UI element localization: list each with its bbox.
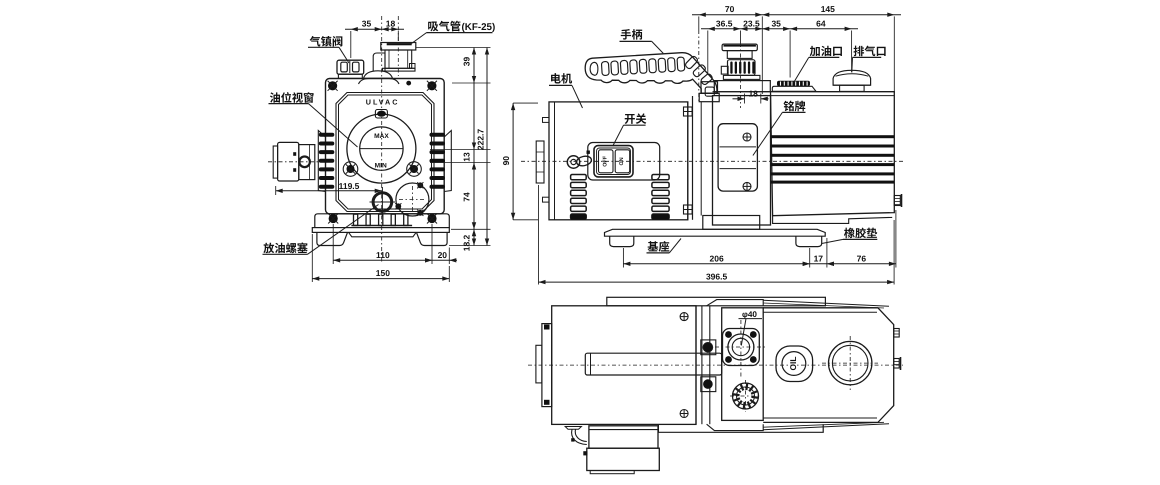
svg-text:35: 35 <box>771 18 781 28</box>
svg-text:18.2: 18.2 <box>462 234 472 251</box>
svg-text:145: 145 <box>821 4 835 14</box>
svg-text:MAX: MAX <box>374 133 389 140</box>
svg-text:(KF-25): (KF-25) <box>462 22 496 33</box>
svg-text:90: 90 <box>501 156 511 166</box>
svg-text:ON: ON <box>619 157 625 165</box>
svg-text:17: 17 <box>814 253 824 263</box>
svg-text:φ40: φ40 <box>742 310 757 319</box>
svg-text:20: 20 <box>438 250 448 260</box>
svg-text:110: 110 <box>376 250 390 260</box>
svg-text:70: 70 <box>725 4 735 14</box>
svg-text:222.7: 222.7 <box>476 129 486 151</box>
svg-text:76: 76 <box>857 253 867 263</box>
svg-text:39: 39 <box>462 57 472 67</box>
svg-text:MIN: MIN <box>375 163 387 170</box>
svg-text:64: 64 <box>816 18 826 28</box>
svg-text:206: 206 <box>710 253 724 263</box>
svg-text:23.5: 23.5 <box>743 18 760 28</box>
svg-text:ULVAC: ULVAC <box>366 98 400 107</box>
svg-text:396.5: 396.5 <box>706 272 728 282</box>
svg-text:13: 13 <box>462 152 472 162</box>
svg-text:18: 18 <box>386 19 396 29</box>
svg-text:150: 150 <box>376 268 390 278</box>
svg-text:18: 18 <box>748 88 758 98</box>
svg-text:36.5: 36.5 <box>716 18 733 28</box>
svg-text:35: 35 <box>362 19 372 29</box>
svg-text:OFF: OFF <box>603 155 609 166</box>
svg-text:74: 74 <box>462 192 472 202</box>
svg-text:OIL: OIL <box>788 357 798 371</box>
svg-text:119.5: 119.5 <box>339 181 360 191</box>
